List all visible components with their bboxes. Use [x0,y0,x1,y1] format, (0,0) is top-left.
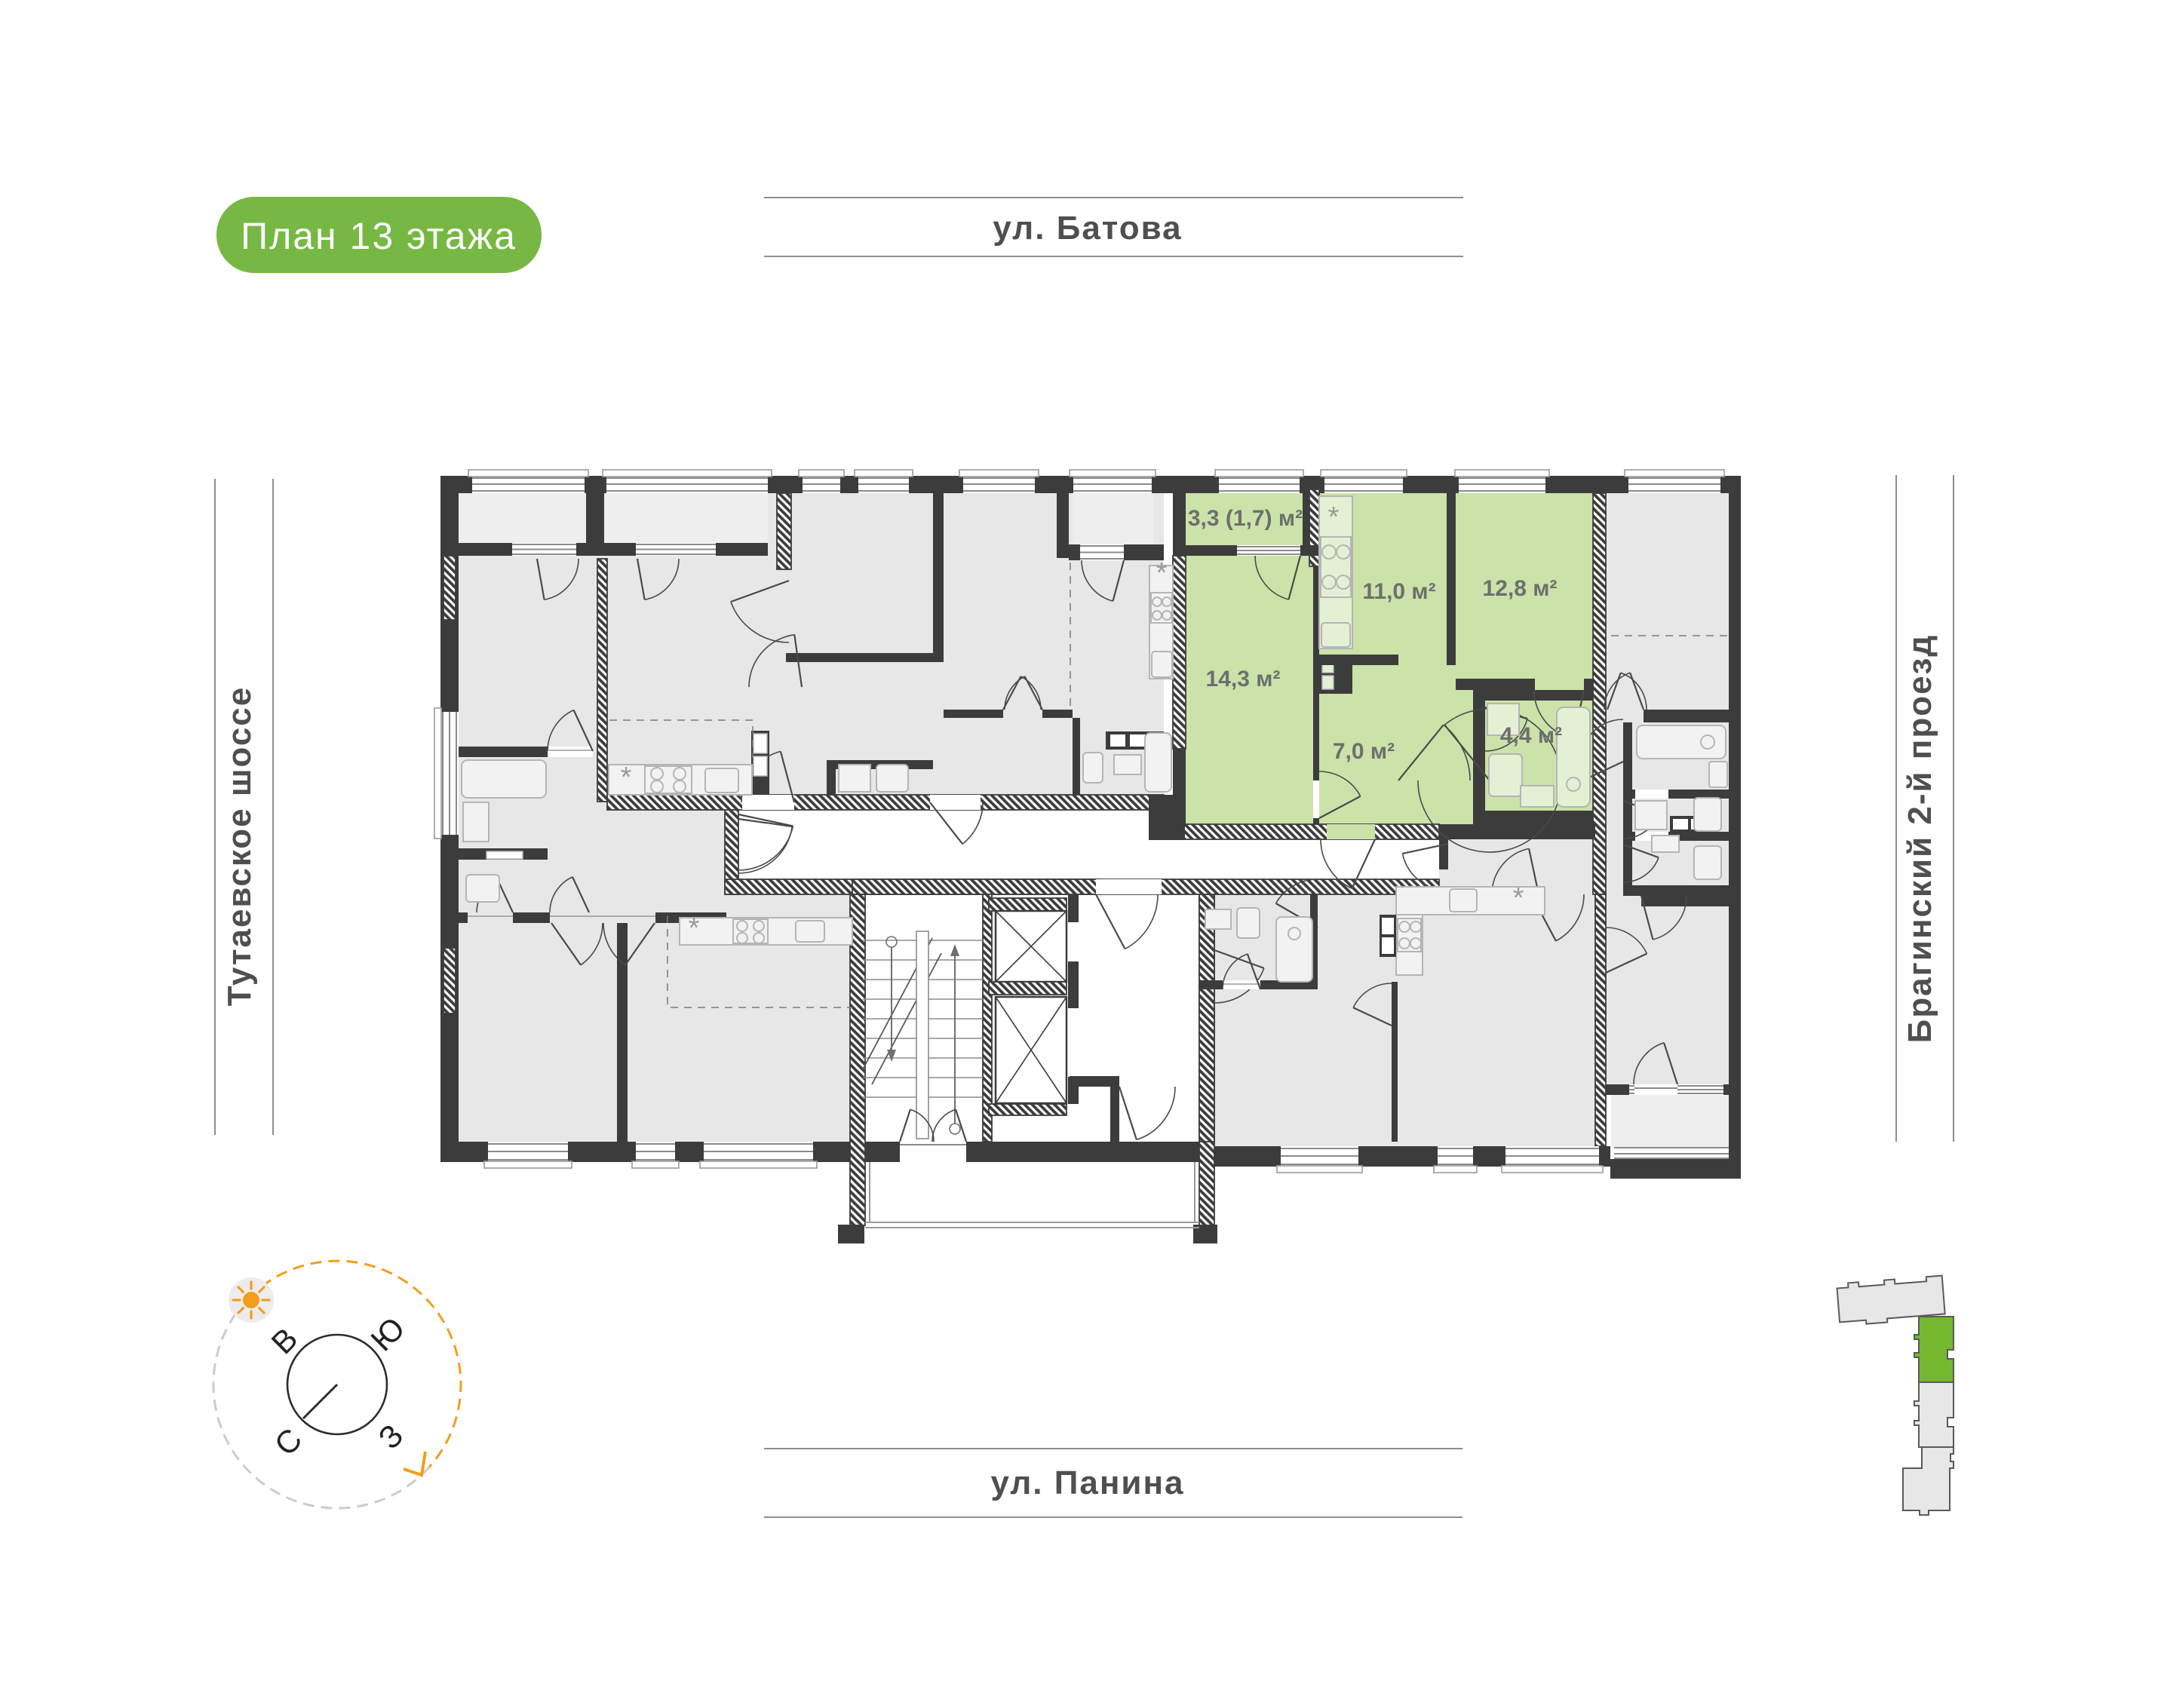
svg-text:*: * [1513,882,1524,914]
svg-text:Тутаевское шоссе: Тутаевское шоссе [221,686,258,1007]
svg-text:Брагинский 2-й проезд: Брагинский 2-й проезд [1901,634,1938,1044]
svg-text:*: * [621,762,632,793]
svg-text:3,3 (1,7) м²: 3,3 (1,7) м² [1188,506,1303,531]
svg-text:ул. Батова: ул. Батова [993,210,1182,247]
svg-text:14,3 м²: 14,3 м² [1206,667,1281,691]
svg-text:12,8 м²: 12,8 м² [1483,576,1558,601]
svg-text:11,0 м²: 11,0 м² [1362,579,1435,604]
svg-text:План 13 этажа: План 13 этажа [241,215,517,257]
svg-text:ул. Панина: ул. Панина [990,1464,1184,1501]
svg-text:7,0 м²: 7,0 м² [1333,739,1395,764]
svg-text:*: * [689,912,700,944]
svg-text:*: * [1328,501,1340,533]
svg-text:4,4 м²: 4,4 м² [1500,723,1562,748]
svg-text:*: * [1156,557,1168,589]
